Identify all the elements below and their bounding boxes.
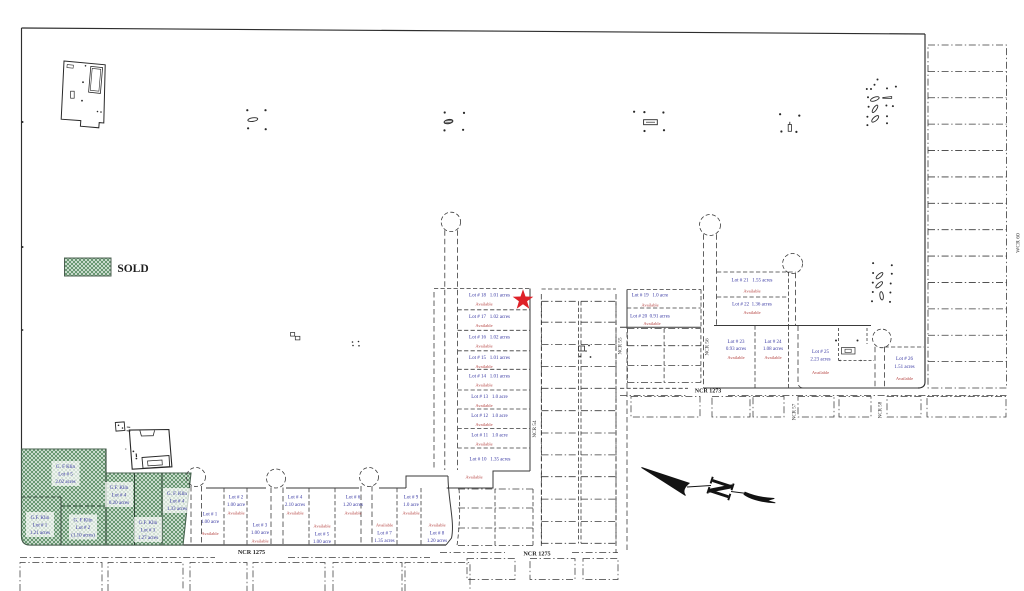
svg-text:Lot # 5: Lot # 5: [315, 533, 330, 538]
svg-text:NCR 1275: NCR 1275: [238, 549, 265, 556]
svg-text:Available: Available: [376, 523, 393, 528]
svg-text:Lot # 8: Lot # 8: [430, 532, 445, 537]
svg-text:Lot # 21 1.55 acres: Lot # 21 1.55 acres: [732, 279, 773, 284]
svg-text:1.00 acre: 1.00 acre: [251, 531, 270, 536]
svg-text:Available: Available: [475, 323, 492, 328]
svg-text:Available: Available: [896, 376, 913, 381]
svg-text:Lot # 4: Lot # 4: [112, 494, 127, 499]
svg-text:0.20 acres: 0.20 acres: [109, 501, 129, 506]
svg-text:1.08 acres: 1.08 acres: [763, 347, 783, 352]
svg-text:Available: Available: [286, 511, 303, 516]
svg-text:Lot # 4: Lot # 4: [288, 496, 303, 501]
svg-text:1.20 acres: 1.20 acres: [427, 539, 447, 544]
svg-text:1.00 acre: 1.00 acre: [201, 520, 220, 525]
svg-text:Lot # 2: Lot # 2: [229, 496, 244, 501]
svg-text:Available: Available: [475, 422, 492, 427]
svg-text:1.35 acres: 1.35 acres: [374, 539, 394, 544]
svg-text:Lot # 12 1.0 acre: Lot # 12 1.0 acre: [471, 414, 508, 419]
svg-text:Available: Available: [641, 303, 658, 308]
svg-text:NCR 54: NCR 54: [532, 420, 538, 438]
svg-text:NCR 56: NCR 56: [705, 338, 711, 356]
svg-text:Available: Available: [402, 511, 419, 516]
svg-text:Lot # 24: Lot # 24: [765, 340, 782, 345]
svg-text:Available: Available: [475, 302, 492, 307]
svg-text:G.F. Klin: G.F. Klin: [139, 521, 158, 526]
svg-text:Lot # 9: Lot # 9: [404, 496, 419, 501]
svg-text:2.10 acres: 2.10 acres: [285, 503, 305, 508]
svg-text:0.93 acres: 0.93 acres: [726, 347, 746, 352]
svg-text:Available: Available: [227, 511, 244, 516]
svg-text:Lot # 23: Lot # 23: [728, 340, 745, 345]
svg-text:G. F. Klin: G. F. Klin: [167, 492, 187, 497]
svg-text:Lot # 3: Lot # 3: [253, 524, 268, 529]
svg-text:Lot # 15 1.01 acres: Lot # 15 1.01 acres: [469, 356, 510, 361]
svg-text:Lot # 2: Lot # 2: [76, 526, 91, 531]
svg-text:Lot # 10 1.35 acres: Lot # 10 1.35 acres: [470, 458, 511, 463]
svg-text:G.F. Klin: G.F. Klin: [31, 516, 50, 521]
svg-text:Lot # 26: Lot # 26: [896, 357, 913, 362]
svg-text:Lot # 1: Lot # 1: [33, 524, 48, 529]
svg-text:1.00 acre: 1.00 acre: [227, 503, 246, 508]
svg-text:Available: Available: [475, 442, 492, 447]
svg-text:NCR 57: NCR 57: [793, 403, 798, 420]
svg-text:Lot # 7: Lot # 7: [377, 532, 392, 537]
svg-text:Available: Available: [475, 364, 492, 369]
svg-text:Available: Available: [475, 383, 492, 388]
svg-text:Available: Available: [344, 511, 361, 516]
svg-text:1.00 acre: 1.00 acre: [313, 540, 332, 545]
svg-text:Lot # 25: Lot # 25: [812, 350, 829, 355]
svg-text:Available: Available: [251, 539, 268, 544]
svg-text:Lot # 18 1.01 acres: Lot # 18 1.01 acres: [469, 294, 510, 299]
svg-text:Available: Available: [465, 475, 482, 480]
svg-text:NCR 1275: NCR 1275: [523, 551, 550, 558]
svg-text:G. F Klin: G. F Klin: [56, 465, 76, 470]
svg-text:NCR 55: NCR 55: [618, 337, 624, 355]
svg-text:G.F. Klin: G.F. Klin: [110, 486, 129, 491]
svg-text:Available: Available: [743, 289, 760, 294]
svg-text:1.33 acres: 1.33 acres: [167, 507, 187, 512]
svg-text:Lot # 3: Lot # 3: [141, 529, 156, 534]
svg-text:Available: Available: [812, 370, 829, 375]
svg-text:(1.10 acres): (1.10 acres): [71, 534, 95, 539]
svg-text:Available: Available: [428, 523, 445, 528]
svg-text:Lot # 13 1.0 acre: Lot # 13 1.0 acre: [471, 395, 508, 400]
svg-text:Available: Available: [475, 403, 492, 408]
svg-text:Lot # 4: Lot # 4: [170, 500, 185, 505]
svg-text:Available: Available: [764, 355, 781, 360]
svg-text:Lot # 6: Lot # 6: [346, 496, 361, 501]
svg-text:1.27 acres: 1.27 acres: [138, 536, 158, 541]
svg-text:NCR 1273: NCR 1273: [695, 389, 722, 395]
svg-text:Lot # 22 1.36 acres: Lot # 22 1.36 acres: [732, 303, 772, 308]
svg-text:Lot # 16 1.02 acres: Lot # 16 1.02 acres: [469, 336, 510, 341]
svg-text:Lot # 20 0.91 acres: Lot # 20 0.91 acres: [630, 315, 670, 320]
svg-text:1.21 acres: 1.21 acres: [30, 531, 50, 536]
svg-text:1.0 acre: 1.0 acre: [403, 503, 420, 508]
svg-text:Lot # 5: Lot # 5: [58, 473, 73, 478]
svg-text:Lot # 11 1.0 acre: Lot # 11 1.0 acre: [471, 434, 508, 439]
svg-text:Available: Available: [313, 524, 330, 529]
svg-text:Lot # 19 1.0 acre: Lot # 19 1.0 acre: [632, 294, 669, 299]
svg-text:1.20 acres: 1.20 acres: [343, 503, 363, 508]
svg-text:NCR 58: NCR 58: [879, 401, 884, 418]
svg-text:1.51 acres: 1.51 acres: [894, 365, 914, 370]
svg-text:G. F Klin: G. F Klin: [73, 519, 93, 524]
svg-text:Available: Available: [727, 355, 744, 360]
svg-text:WCR 60: WCR 60: [1016, 233, 1022, 253]
svg-text:Available: Available: [201, 531, 218, 536]
svg-text:Available: Available: [643, 321, 660, 326]
svg-text:Available: Available: [743, 310, 760, 315]
svg-text:Lot # 14 1.01 acres: Lot # 14 1.01 acres: [469, 375, 510, 380]
svg-text:Lot # 17 1.02 acres: Lot # 17 1.02 acres: [469, 315, 510, 320]
svg-text:2.23 acres: 2.23 acres: [810, 358, 830, 363]
svg-text:Available: Available: [475, 344, 492, 349]
svg-text:SOLD: SOLD: [117, 263, 148, 275]
svg-text:Lot # 1: Lot # 1: [203, 513, 218, 518]
svg-text:2.02 acres: 2.02 acres: [55, 480, 75, 485]
